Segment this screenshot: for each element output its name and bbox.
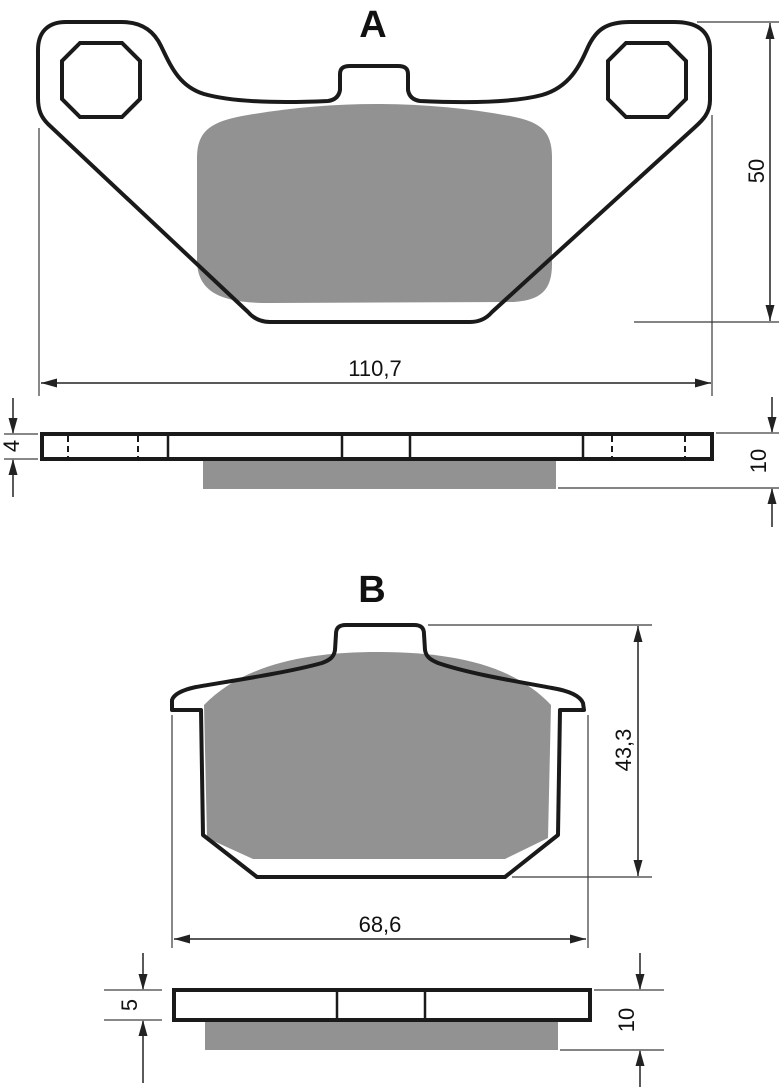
pad-a-mounting-hole-left	[62, 43, 140, 117]
pad-b-width-value: 68,6	[359, 912, 402, 937]
pad-b-side-backplate	[174, 990, 590, 1020]
pad-b-side-friction	[205, 1021, 558, 1050]
arrowhead-down	[139, 974, 148, 990]
arrowhead-down	[766, 305, 775, 321]
pad-a-total-thickness-value: 10	[746, 449, 771, 473]
technical-drawing-page: A 110,7 50	[0, 0, 784, 1087]
arrowhead-up	[766, 23, 775, 39]
arrowhead-down	[634, 860, 643, 876]
pad-b-side-view	[174, 990, 590, 1050]
arrowhead-right	[570, 935, 586, 944]
pad-a-width-value: 110,7	[348, 356, 401, 381]
arrowhead-up	[139, 1020, 148, 1036]
pad-a-mounting-hole-right	[608, 43, 686, 117]
pad-a-plate-thickness-dimension: 4	[0, 398, 38, 497]
arrowhead-left	[174, 935, 190, 944]
arrowhead-up	[9, 459, 18, 475]
pad-b-label: B	[358, 569, 385, 611]
pad-b-outline	[172, 625, 584, 877]
pad-a-label: A	[359, 4, 386, 46]
pad-a-plan-view: A	[38, 4, 710, 322]
pad-a-side-view	[42, 434, 712, 489]
pad-a-plate-thickness-value: 4	[0, 440, 24, 452]
arrowhead-down	[768, 417, 777, 433]
brake-pad-drawing: A 110,7 50	[0, 0, 784, 1087]
pad-a-height-value: 50	[744, 159, 769, 183]
pad-b-plan-view: B	[172, 569, 584, 877]
arrowhead-down	[9, 418, 18, 434]
arrowhead-up	[768, 488, 777, 504]
arrowhead-up	[636, 1050, 645, 1066]
arrowhead-right	[695, 379, 711, 388]
arrowhead-up	[634, 626, 643, 642]
pad-b-total-thickness-value: 10	[614, 1008, 639, 1032]
arrowhead-down	[636, 974, 645, 990]
pad-b-plate-thickness-dimension: 5	[104, 953, 162, 1083]
pad-b-plate-thickness-value: 5	[117, 999, 142, 1011]
pad-a-total-thickness-dimension: 10	[558, 397, 779, 527]
pad-a-side-friction	[203, 460, 556, 489]
pad-b-height-value: 43,3	[611, 729, 636, 772]
arrowhead-left	[41, 379, 57, 388]
